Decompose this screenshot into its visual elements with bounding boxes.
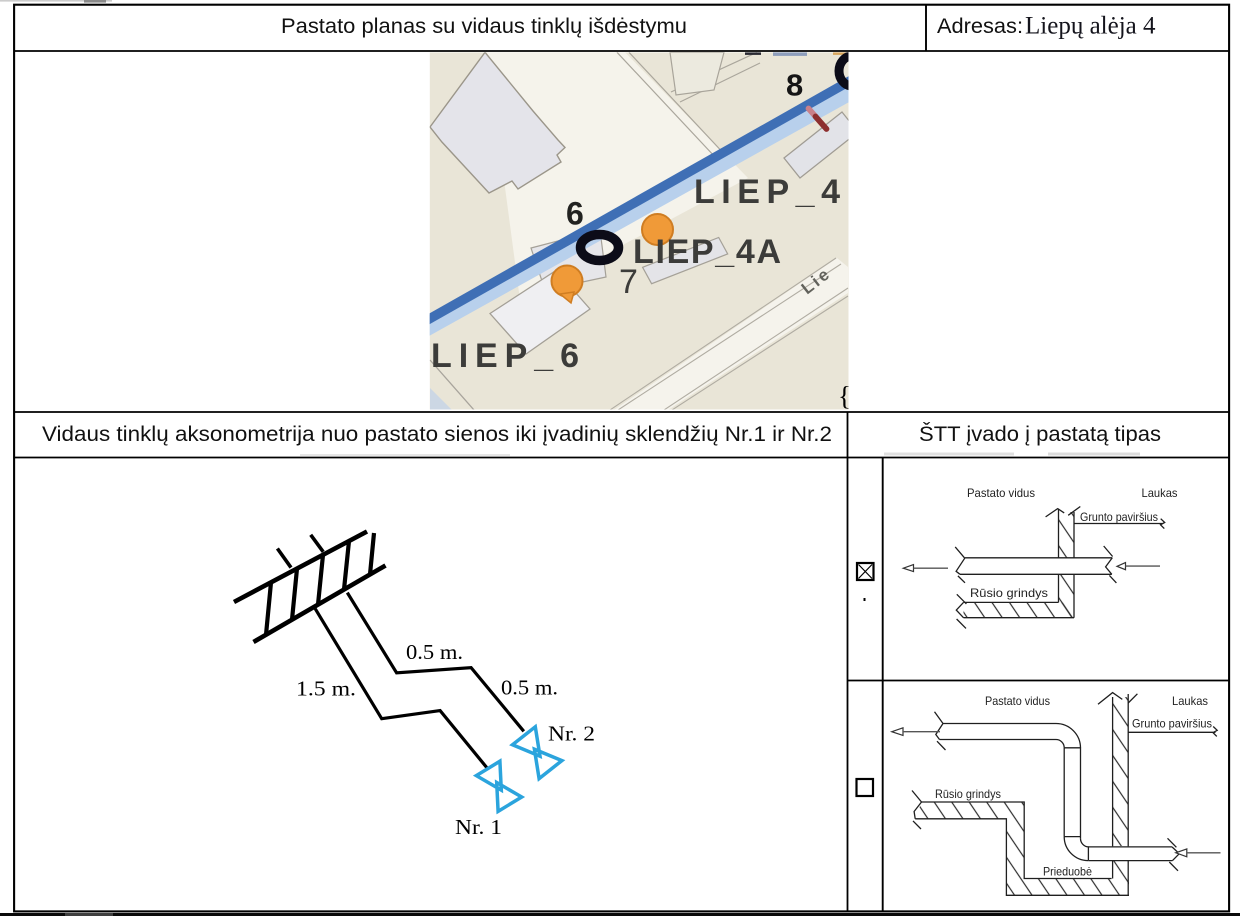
svg-text:Nr. 2: Nr. 2	[548, 722, 595, 746]
svg-text:8: 8	[786, 68, 803, 103]
svg-text:6: 6	[566, 196, 584, 232]
svg-text:7: 7	[619, 263, 638, 301]
svg-text:Grunto paviršius: Grunto paviršius	[1080, 510, 1158, 524]
svg-text:Liepų alėja 4: Liepų alėja 4	[1025, 13, 1156, 40]
svg-text:Pastato vidus: Pastato vidus	[985, 694, 1050, 708]
svg-text:Grunto paviršius: Grunto paviršius	[1132, 717, 1212, 731]
svg-text:{: {	[838, 381, 851, 411]
svg-text:Vidaus tinklų aksonometrija nu: Vidaus tinklų aksonometrija nuo pastato …	[42, 423, 832, 446]
svg-text:1.5 m.: 1.5 m.	[296, 677, 356, 701]
svg-text:ŠTT įvado į pastatą tipas: ŠTT įvado į pastatą tipas	[919, 423, 1161, 446]
svg-text:Rūsio grindys: Rūsio grindys	[970, 586, 1048, 600]
svg-text:Laukas: Laukas	[1142, 486, 1178, 500]
svg-text:Laukas: Laukas	[1172, 694, 1208, 708]
svg-text:Nr. 1: Nr. 1	[455, 815, 502, 839]
svg-text:0.5 m.: 0.5 m.	[406, 640, 463, 664]
svg-text:Rūsio grindys: Rūsio grindys	[935, 787, 1001, 801]
svg-text:0.5 m.: 0.5 m.	[501, 676, 558, 700]
svg-text:LIEP_4A: LIEP_4A	[633, 233, 781, 271]
svg-text:Pastato vidus: Pastato vidus	[967, 486, 1035, 500]
svg-text:Adresas:: Adresas:	[937, 15, 1023, 38]
svg-text:Prieduobė: Prieduobė	[1043, 865, 1092, 879]
svg-text:Pastato planas su vidaus tinkl: Pastato planas su vidaus tinklų išdėstym…	[281, 15, 687, 38]
